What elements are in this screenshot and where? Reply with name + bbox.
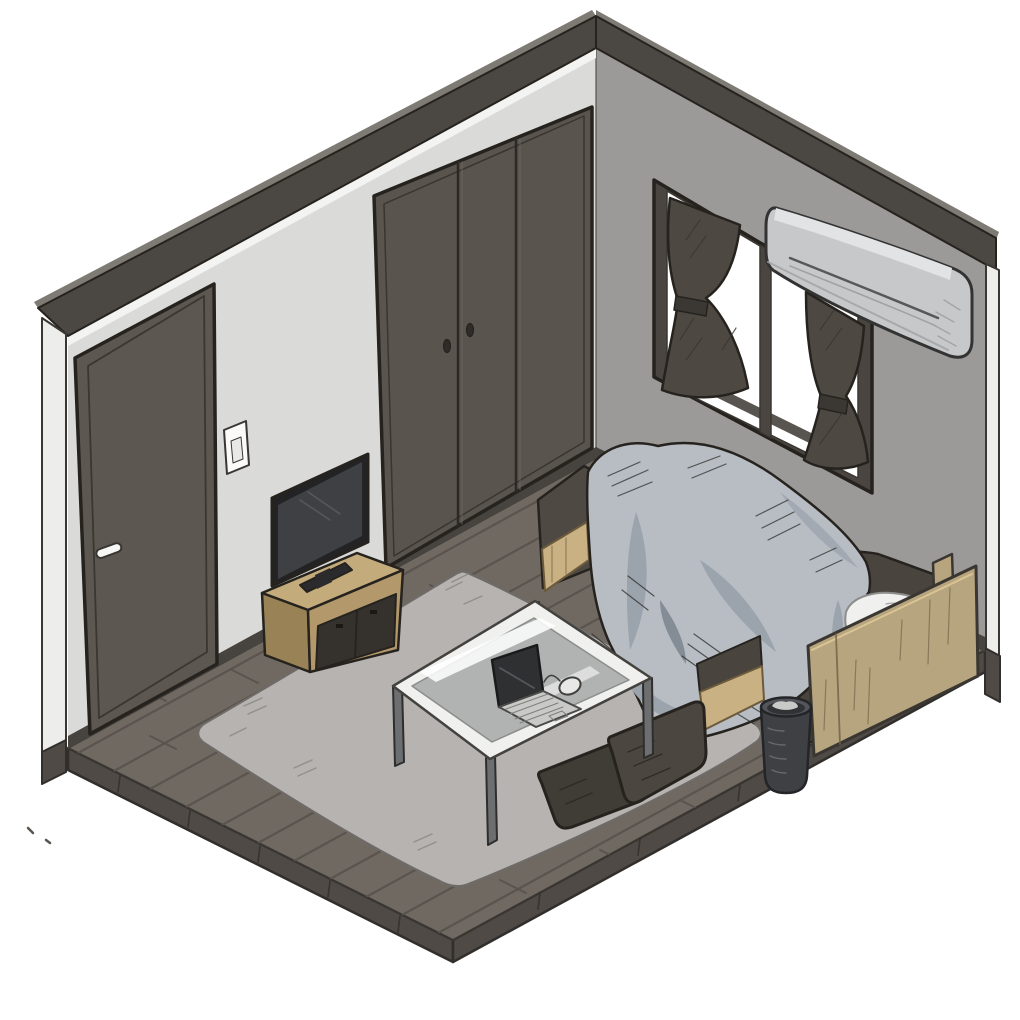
switch-rocker (231, 437, 243, 463)
table-leg-west (393, 684, 404, 766)
trash-can (761, 698, 811, 794)
left-wall-edge-strip (42, 318, 66, 762)
light-switch (224, 421, 249, 474)
table-leg-east (643, 678, 653, 758)
illustration-canvas (0, 0, 1020, 1020)
door-slab (75, 284, 217, 734)
entry-door (75, 284, 217, 734)
trash-body (761, 708, 811, 793)
isometric-bedroom-scene (0, 0, 1020, 1020)
tv-stand-handle-left (336, 624, 343, 628)
closet-handle-right (467, 324, 474, 337)
table-leg-south (486, 754, 497, 845)
stray-mark-1 (28, 828, 33, 833)
right-wall-edge-strip (986, 264, 999, 686)
stray-mark-2 (46, 840, 50, 843)
tv-stand-handle-right (370, 610, 377, 614)
closet-handle-left (444, 340, 451, 353)
window-mullion (760, 245, 771, 438)
right-wall-edge-bottom-cap (985, 648, 1000, 702)
stray-marks (28, 828, 50, 843)
